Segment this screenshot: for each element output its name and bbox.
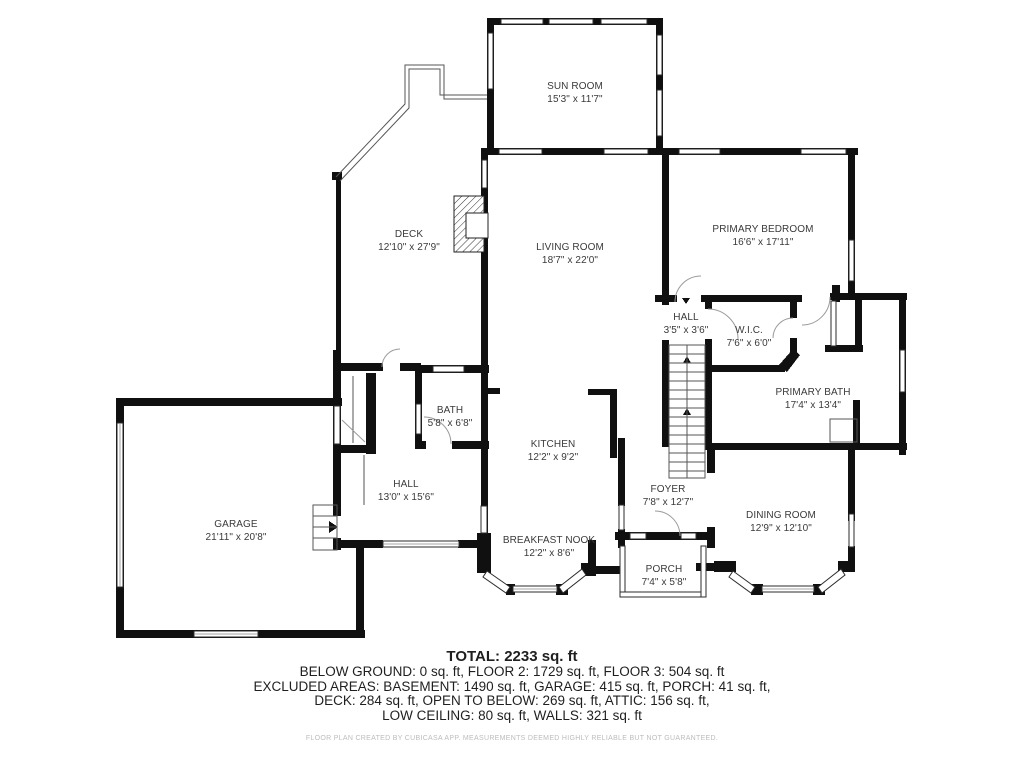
room-dims: 17'4" x 13'4": [775, 399, 850, 412]
room-dims: 5'8" x 6'8": [428, 417, 473, 430]
room-name: BATH: [428, 404, 473, 417]
room-label-wic: W.I.C. 7'6" x 6'0": [727, 324, 772, 350]
room-name: GARAGE: [205, 518, 266, 531]
floor-plan-page: SUN ROOM 15'3" x 11'7" DECK 12'10" x 27'…: [0, 0, 1024, 768]
room-name: DINING ROOM: [746, 509, 816, 522]
summary-total: TOTAL: 2233 sq. ft: [0, 648, 1024, 665]
room-label-living-room: LIVING ROOM 18'7" x 22'0": [536, 241, 604, 267]
deck-railing: [336, 65, 487, 181]
room-dims: 3'5" x 3'6": [664, 324, 709, 337]
room-dims: 16'6" x 17'11": [712, 236, 813, 249]
room-name: BREAKFAST NOOK: [503, 534, 595, 547]
room-name: PRIMARY BATH: [775, 386, 850, 399]
room-name: LIVING ROOM: [536, 241, 604, 254]
room-label-bath: BATH 5'8" x 6'8": [428, 404, 473, 430]
room-label-foyer: FOYER 7'8" x 12'7": [643, 483, 693, 509]
room-label-kitchen: KITCHEN 12'2" x 9'2": [528, 438, 578, 464]
room-name: PORCH: [642, 563, 687, 576]
room-dims: 21'11" x 20'8": [205, 531, 266, 544]
summary-line-2: EXCLUDED AREAS: BASEMENT: 1490 sq. ft, G…: [0, 680, 1024, 695]
room-label-primary-bedroom: PRIMARY BEDROOM 16'6" x 17'11": [712, 223, 813, 249]
room-label-sun-room: SUN ROOM 15'3" x 11'7": [547, 80, 603, 106]
room-dims: 12'9" x 12'10": [746, 522, 816, 535]
room-name: W.I.C.: [727, 324, 772, 337]
room-dims: 15'3" x 11'7": [547, 93, 603, 106]
room-dims: 12'2" x 8'6": [503, 547, 595, 560]
room-dims: 7'4" x 5'8": [642, 576, 687, 589]
summary-disclaimer: FLOOR PLAN CREATED BY CUBICASA APP. MEAS…: [0, 735, 1024, 742]
room-name: HALL: [664, 311, 709, 324]
room-dims: 13'0" x 15'6": [378, 491, 434, 504]
room-dims: 7'6" x 6'0": [727, 337, 772, 350]
room-dims: 18'7" x 22'0": [536, 254, 604, 267]
staircase: [669, 345, 705, 478]
room-label-porch: PORCH 7'4" x 5'8": [642, 563, 687, 589]
room-name: PRIMARY BEDROOM: [712, 223, 813, 236]
room-name: KITCHEN: [528, 438, 578, 451]
summary-line-4: LOW CEILING: 80 sq. ft, WALLS: 321 sq. f…: [0, 709, 1024, 724]
room-name: HALL: [378, 478, 434, 491]
room-label-primary-bath: PRIMARY BATH 17'4" x 13'4": [775, 386, 850, 412]
room-label-hall-lower: HALL 13'0" x 15'6": [378, 478, 434, 504]
room-label-deck: DECK 12'10" x 27'9": [378, 228, 440, 254]
room-name: SUN ROOM: [547, 80, 603, 93]
room-name: DECK: [378, 228, 440, 241]
area-summary: TOTAL: 2233 sq. ft BELOW GROUND: 0 sq. f…: [0, 648, 1024, 742]
room-label-hall-upper: HALL 3'5" x 3'6": [664, 311, 709, 337]
room-dims: 12'2" x 9'2": [528, 451, 578, 464]
room-dims: 12'10" x 27'9": [378, 241, 440, 254]
room-dims: 7'8" x 12'7": [643, 496, 693, 509]
room-label-garage: GARAGE 21'11" x 20'8": [205, 518, 266, 544]
room-label-breakfast-nook: BREAKFAST NOOK 12'2" x 8'6": [503, 534, 595, 560]
room-name: FOYER: [643, 483, 693, 496]
fireplace: [454, 196, 488, 252]
summary-line-1: BELOW GROUND: 0 sq. ft, FLOOR 2: 1729 sq…: [0, 665, 1024, 680]
summary-line-3: DECK: 284 sq. ft, OPEN TO BELOW: 269 sq.…: [0, 694, 1024, 709]
room-label-dining-room: DINING ROOM 12'9" x 12'10": [746, 509, 816, 535]
